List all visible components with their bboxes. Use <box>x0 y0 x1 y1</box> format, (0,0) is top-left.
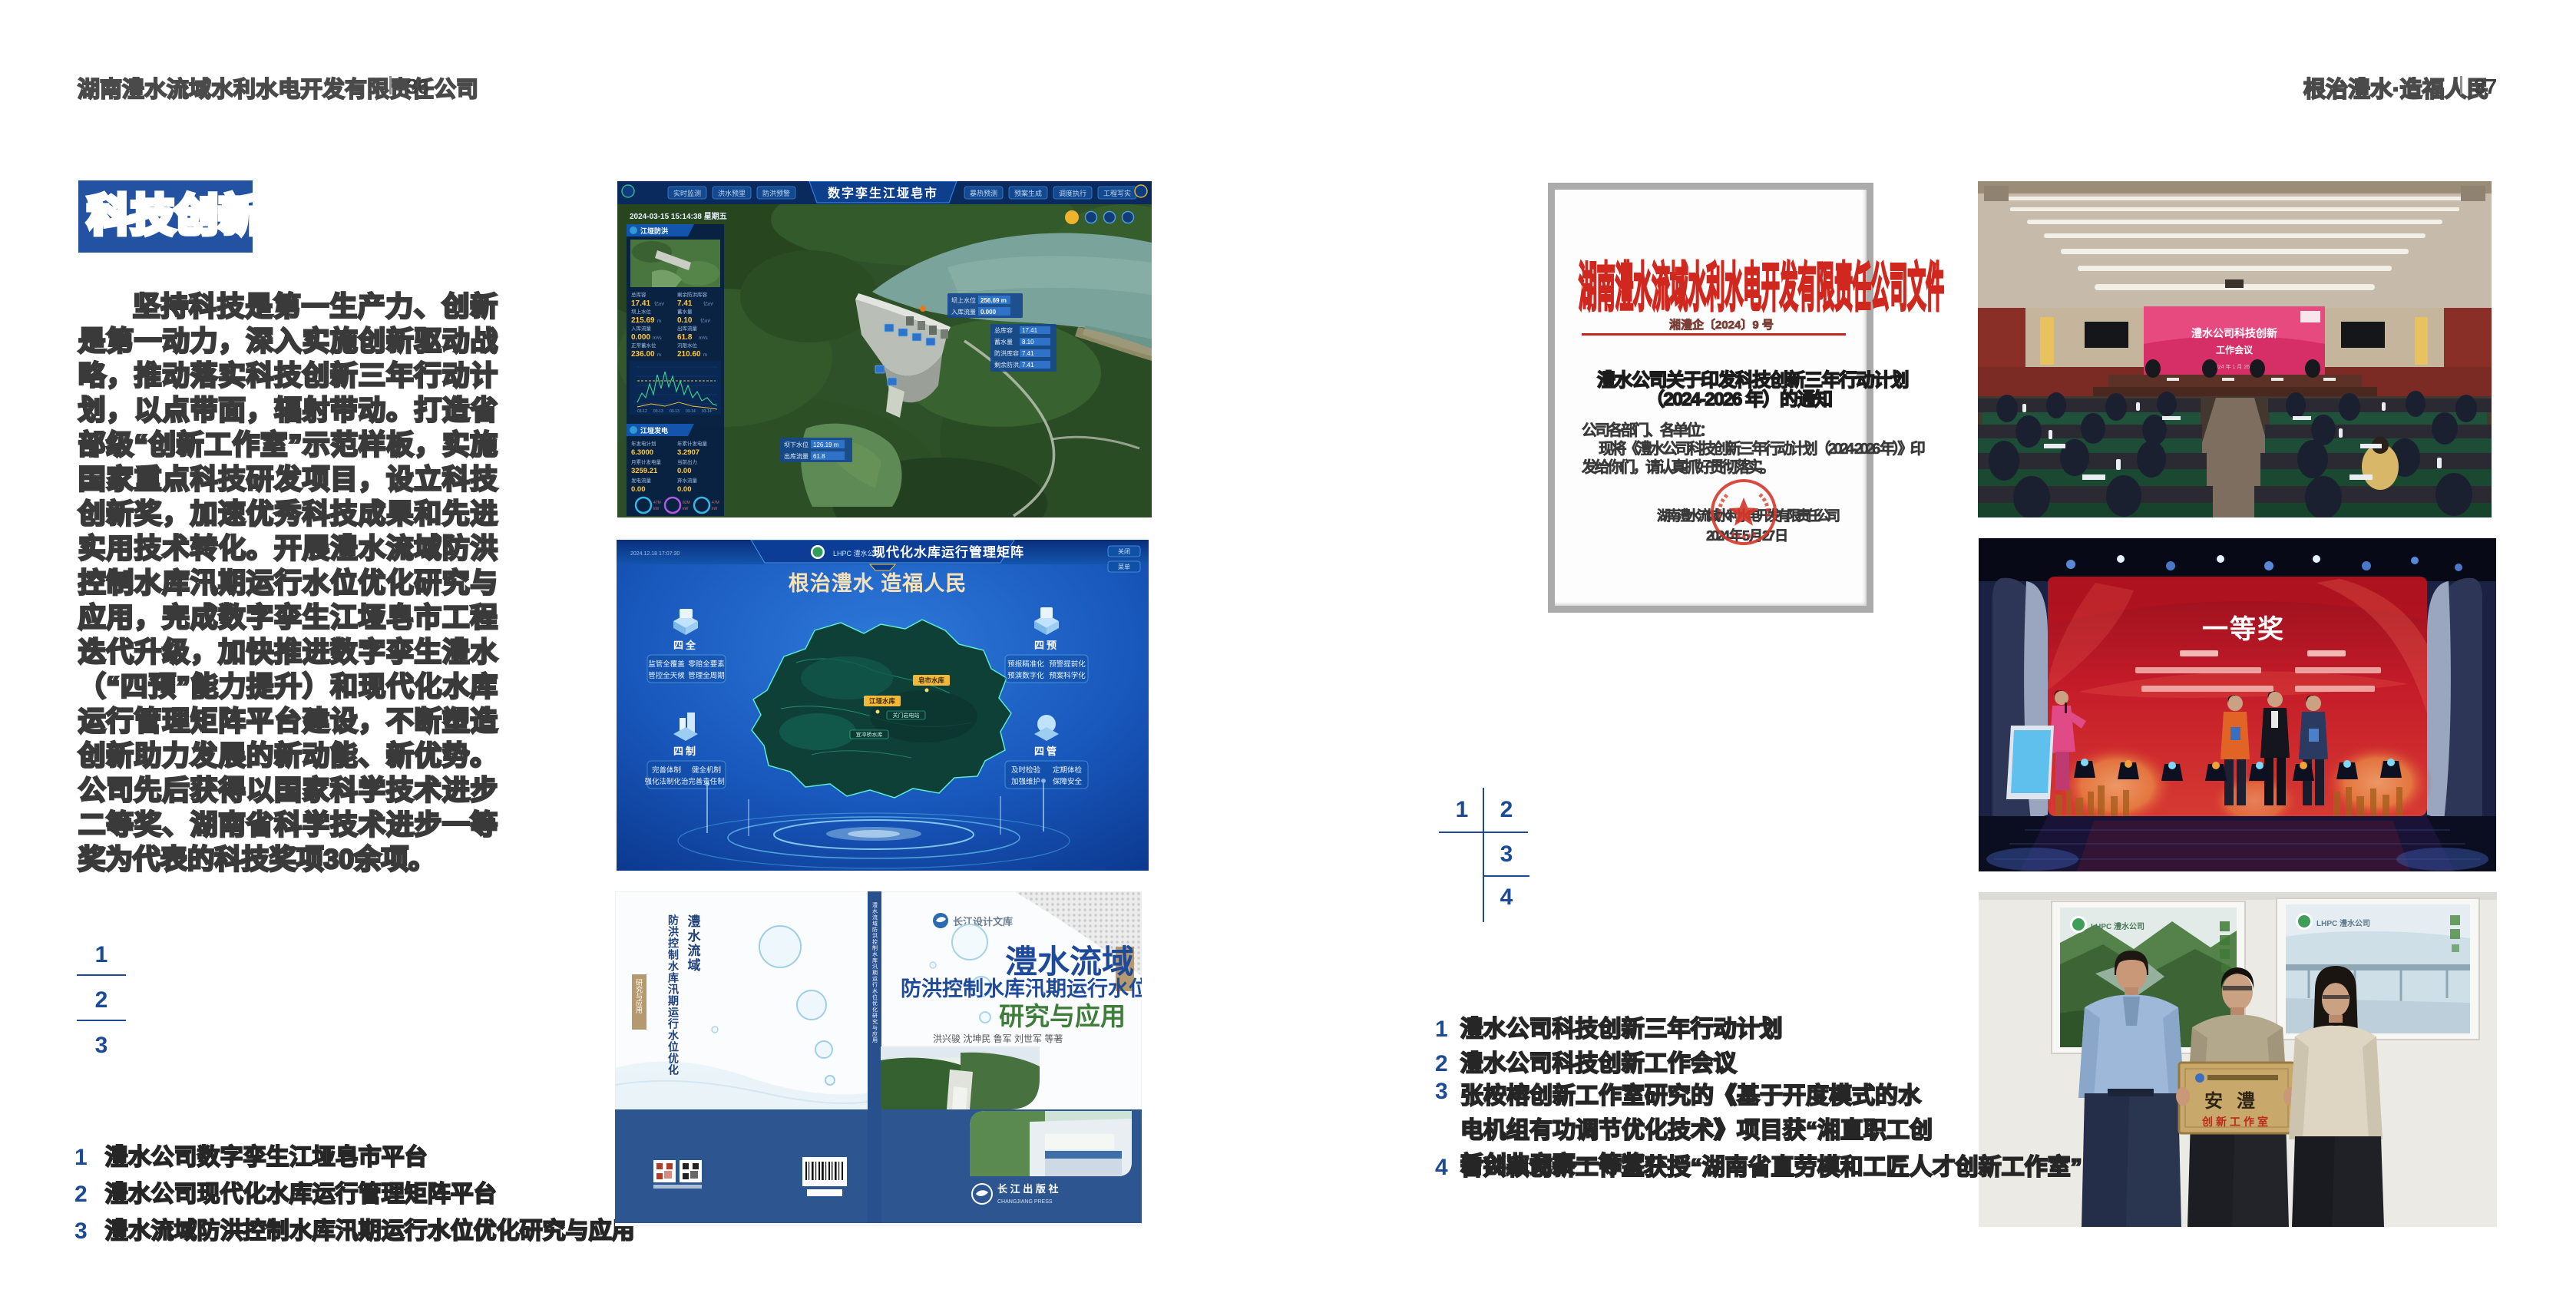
svg-text:亿m³: 亿m³ <box>654 301 664 307</box>
svg-text:0.00: 0.00 <box>677 485 692 494</box>
svg-text:宜冲桥水库: 宜冲桥水库 <box>856 731 883 738</box>
svg-text:工程写实: 工程写实 <box>1103 189 1131 197</box>
svg-text:防洪控制水库汛期运行水位优化: 防洪控制水库汛期运行水位优化 <box>901 977 1142 1000</box>
svg-text:03-14: 03-14 <box>702 409 712 414</box>
svg-text:防洪控制水库汛期运行水位优化: 防洪控制水库汛期运行水位优化 <box>667 914 680 1076</box>
svg-text:预报精准化: 预报精准化 <box>1007 660 1044 669</box>
svg-text:加强维护: 加强维护 <box>1011 777 1040 786</box>
svg-text:澧水流域防洪控制水库汛期运行水位优化研究与应用: 澧水流域防洪控制水库汛期运行水位优化研究与应用 <box>872 901 878 1043</box>
svg-text:预案科学化: 预案科学化 <box>1049 671 1086 680</box>
svg-text:澧水流域: 澧水流域 <box>1005 944 1134 980</box>
svg-text:出库流量: 出库流量 <box>677 325 698 332</box>
svg-text:研究与应用: 研究与应用 <box>635 979 643 1014</box>
svg-text:正常蓄水位: 正常蓄水位 <box>631 342 656 349</box>
svg-text:17.41: 17.41 <box>631 299 650 308</box>
svg-text:汛限水位: 汛限水位 <box>677 342 698 349</box>
svg-text:澧水公司科技创新: 澧水公司科技创新 <box>2191 327 2277 339</box>
svg-text:CHANGJIANG PRESS: CHANGJIANG PRESS <box>997 1199 1053 1205</box>
svg-text:四管: 四管 <box>1034 746 1059 757</box>
svg-text:皂市水库: 皂市水库 <box>918 676 945 684</box>
svg-text:3259.21: 3259.21 <box>631 467 658 475</box>
svg-text:监管全覆盖: 监管全覆盖 <box>648 660 685 669</box>
svg-text:LHPC 澧水公司: LHPC 澧水公司 <box>2091 921 2144 931</box>
svg-text:256.69 m: 256.69 m <box>980 297 1007 304</box>
svg-text:126.19 m: 126.19 m <box>813 441 839 448</box>
svg-text:47M: 47M <box>653 501 661 505</box>
svg-text:0.10: 0.10 <box>677 316 693 325</box>
svg-text:菜单: 菜单 <box>1118 563 1130 570</box>
svg-text:LHPC 澧水公司: LHPC 澧水公司 <box>2316 918 2370 928</box>
svg-text:m³/s: m³/s <box>699 336 708 341</box>
svg-text:现代化水库运行管理矩阵: 现代化水库运行管理矩阵 <box>872 544 1024 560</box>
svg-text:m: m <box>703 353 707 358</box>
svg-text:管控全天候: 管控全天候 <box>648 671 685 680</box>
svg-text:kW: kW <box>683 507 689 511</box>
svg-text:工作会议: 工作会议 <box>2216 344 2254 355</box>
svg-text:47M: 47M <box>712 501 719 505</box>
svg-text:预演数字化: 预演数字化 <box>1007 671 1044 680</box>
svg-text:03-14: 03-14 <box>686 409 696 414</box>
svg-text:0.00: 0.00 <box>677 467 692 475</box>
svg-text:坝上水位: 坝上水位 <box>951 296 976 304</box>
svg-text:完善体制: 完善体制 <box>652 765 681 775</box>
svg-text:江垭发电: 江垭发电 <box>640 426 668 435</box>
svg-text:03-13: 03-13 <box>653 409 663 414</box>
svg-text:预警提前化: 预警提前化 <box>1049 660 1086 669</box>
svg-text:暴热预测: 暴热预测 <box>970 189 997 197</box>
svg-text:弃水流量: 弃水流量 <box>677 477 698 484</box>
svg-text:坝下水位: 坝下水位 <box>784 441 809 448</box>
svg-text:发电流量: 发电流量 <box>631 477 652 484</box>
svg-text:年累计发电量: 年累计发电量 <box>677 440 708 447</box>
svg-text:剩余防洪库容: 剩余防洪库容 <box>677 291 708 298</box>
svg-text:四全: 四全 <box>673 640 698 651</box>
svg-text:江垭水库: 江垭水库 <box>869 697 896 705</box>
svg-text:研究与应用: 研究与应用 <box>999 1002 1126 1030</box>
svg-text:215.69: 215.69 <box>631 316 655 325</box>
svg-text:61.8: 61.8 <box>813 453 825 460</box>
svg-text:82M: 82M <box>683 501 690 505</box>
svg-text:根治澧水 造福人民: 根治澧水 造福人民 <box>789 572 967 595</box>
svg-text:数字孪生江垭皂市: 数字孪生江垭皂市 <box>828 186 938 200</box>
svg-text:236.00: 236.00 <box>631 350 655 359</box>
svg-text:月累计发电量: 月累计发电量 <box>631 458 662 465</box>
svg-text:实时监测: 实时监测 <box>673 189 701 197</box>
svg-text:关门岩电站: 关门岩电站 <box>893 712 920 719</box>
svg-text:蓄水量: 蓄水量 <box>994 338 1013 346</box>
svg-text:0.000: 0.000 <box>631 333 650 342</box>
svg-text:预案生成: 预案生成 <box>1014 189 1042 197</box>
svg-text:江垭防洪: 江垭防洪 <box>640 226 668 235</box>
svg-text:kW: kW <box>712 507 718 511</box>
svg-text:7.41: 7.41 <box>1022 350 1034 357</box>
svg-text:四预: 四预 <box>1034 640 1059 651</box>
svg-text:洪兴骏 沈坤民 鲁军 刘世军 等著: 洪兴骏 沈坤民 鲁军 刘世军 等著 <box>933 1033 1063 1044</box>
svg-text:坝上水位: 坝上水位 <box>631 308 652 315</box>
svg-text:创新工作室: 创新工作室 <box>2201 1116 2271 1128</box>
svg-text:6.3000: 6.3000 <box>631 448 653 457</box>
svg-text:当前出力: 当前出力 <box>677 458 697 465</box>
svg-text:防洪库容: 防洪库容 <box>994 349 1019 357</box>
svg-text:0.00: 0.00 <box>631 485 646 494</box>
svg-text:61.8: 61.8 <box>677 333 693 342</box>
svg-text:出库流量: 出库流量 <box>784 452 809 460</box>
svg-text:7.41: 7.41 <box>677 299 693 308</box>
svg-text:03-13: 03-13 <box>670 409 680 414</box>
svg-text:一等奖: 一等奖 <box>2202 615 2285 644</box>
svg-text:m³/s: m³/s <box>653 336 662 341</box>
svg-text:关闭: 关闭 <box>1118 547 1130 555</box>
svg-text:及时检验: 及时检验 <box>1011 765 1041 775</box>
svg-text:3.2907: 3.2907 <box>677 448 699 457</box>
svg-text:洪水预里: 洪水预里 <box>718 189 746 197</box>
svg-text:0.000: 0.000 <box>980 309 997 316</box>
svg-text:2024-03-15 15:14:38 星期五: 2024-03-15 15:14:38 星期五 <box>630 211 727 221</box>
svg-text:调度执行: 调度执行 <box>1059 189 1086 197</box>
svg-text:入库流量: 入库流量 <box>631 325 652 332</box>
svg-text:总库容: 总库容 <box>631 291 646 298</box>
svg-text:03-12: 03-12 <box>637 409 647 414</box>
svg-text:8.10: 8.10 <box>1022 339 1034 346</box>
svg-text:定期体检: 定期体检 <box>1053 765 1083 775</box>
svg-text:7.41: 7.41 <box>1022 362 1034 369</box>
svg-text:kW: kW <box>653 507 660 511</box>
svg-text:四制: 四制 <box>673 746 698 757</box>
svg-text:蓄水量: 蓄水量 <box>677 308 693 315</box>
svg-text:m: m <box>657 319 661 324</box>
svg-text:零赔全要素: 零赔全要素 <box>688 660 725 669</box>
svg-text:总库容: 总库容 <box>994 326 1013 334</box>
svg-text:健全机制: 健全机制 <box>692 765 721 775</box>
svg-text:长 江 出 版 社: 长 江 出 版 社 <box>997 1183 1058 1195</box>
svg-text:210.60: 210.60 <box>677 350 701 359</box>
svg-text:安澧: 安澧 <box>2204 1090 2269 1112</box>
svg-text:2024.12.18 17:07:30: 2024.12.18 17:07:30 <box>630 551 680 557</box>
svg-text:m: m <box>657 353 661 358</box>
svg-text:保障安全: 保障安全 <box>1053 777 1083 786</box>
svg-text:防洪预警: 防洪预警 <box>762 189 790 197</box>
svg-text:亿m³: 亿m³ <box>700 318 710 324</box>
svg-text:亿m³: 亿m³ <box>703 301 713 307</box>
svg-text:强化法制化治: 强化法制化治 <box>644 777 688 786</box>
svg-text:入库流量: 入库流量 <box>951 308 976 316</box>
svg-text:管理全周期: 管理全周期 <box>688 671 725 680</box>
svg-text:澧水流域: 澧水流域 <box>686 914 701 973</box>
svg-text:17.41: 17.41 <box>1022 327 1038 334</box>
svg-text:年发电计划: 年发电计划 <box>631 440 656 447</box>
